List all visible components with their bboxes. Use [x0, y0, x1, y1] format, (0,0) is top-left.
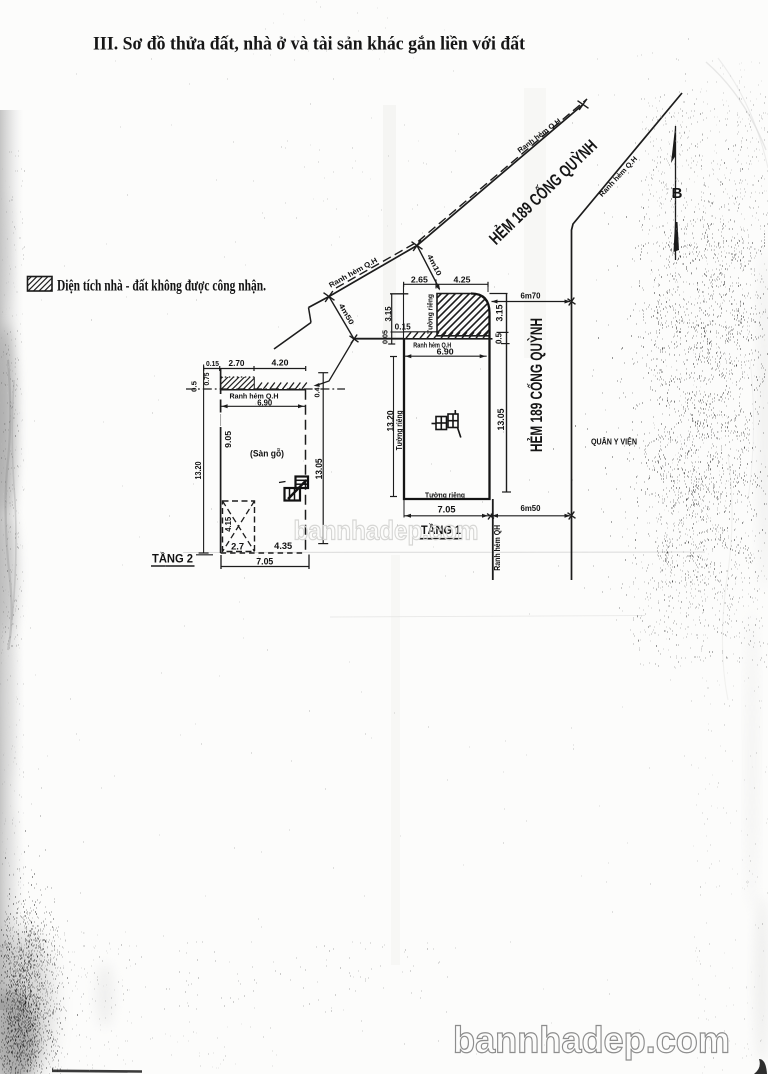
svg-text:HẺM 189 CỐNG QUỲNH: HẺM 189 CỐNG QUỲNH: [526, 318, 546, 452]
svg-text:6m70: 6m70: [521, 292, 542, 301]
svg-text:13.05: 13.05: [314, 458, 324, 479]
svg-text:9.05: 9.05: [224, 430, 233, 448]
svg-text:6.90: 6.90: [437, 346, 454, 356]
svg-text:13.05: 13.05: [496, 408, 507, 431]
svg-text:Tường riêng: Tường riêng: [395, 410, 404, 450]
svg-text:(Sàn gỗ): (Sàn gỗ): [250, 449, 284, 460]
svg-text:0.75: 0.75: [204, 372, 211, 385]
svg-text:2.70: 2.70: [229, 359, 246, 368]
svg-text:3.15: 3.15: [494, 305, 504, 322]
svg-text:III. Sơ đồ thửa đất, nhà ở và: III. Sơ đồ thửa đất, nhà ở và tài sản kh…: [93, 35, 526, 55]
svg-text:4.15: 4.15: [223, 517, 233, 532]
svg-text:2.7: 2.7: [231, 542, 244, 552]
svg-text:4.35: 4.35: [274, 541, 292, 551]
svg-text:Tường riêng: Tường riêng: [426, 294, 435, 334]
svg-text:Tường riêng: Tường riêng: [425, 491, 465, 500]
svg-text:0.05: 0.05: [381, 330, 390, 344]
svg-text:bannhadep.com: bannhadep.com: [294, 516, 479, 546]
svg-text:3.15: 3.15: [383, 306, 393, 321]
svg-text:6m50: 6m50: [521, 504, 542, 513]
svg-text:Ranh hẻm QH: Ranh hẻm QH: [493, 525, 502, 571]
svg-text:QUÂN Y VIỆN: QUÂN Y VIỆN: [591, 438, 637, 447]
svg-text:13.20: 13.20: [193, 461, 203, 479]
svg-text:0.15: 0.15: [206, 359, 219, 368]
svg-text:0.4: 0.4: [313, 387, 322, 398]
svg-text:TẦNG 2: TẦNG 2: [152, 551, 193, 566]
svg-text:0.5: 0.5: [190, 381, 199, 392]
svg-text:bannhadep.com: bannhadep.com: [453, 1019, 730, 1061]
svg-text:B: B: [672, 185, 683, 202]
svg-text:0.5: 0.5: [494, 333, 504, 344]
svg-text:7.05: 7.05: [438, 505, 456, 515]
svg-text:4.20: 4.20: [272, 359, 290, 368]
svg-text:0.15: 0.15: [395, 323, 412, 332]
svg-text:2.65: 2.65: [411, 275, 428, 285]
svg-text:4.25: 4.25: [454, 274, 471, 284]
svg-text:Diện tích nhà - đất không được: Diện tích nhà - đất không được công nhận…: [57, 278, 266, 295]
